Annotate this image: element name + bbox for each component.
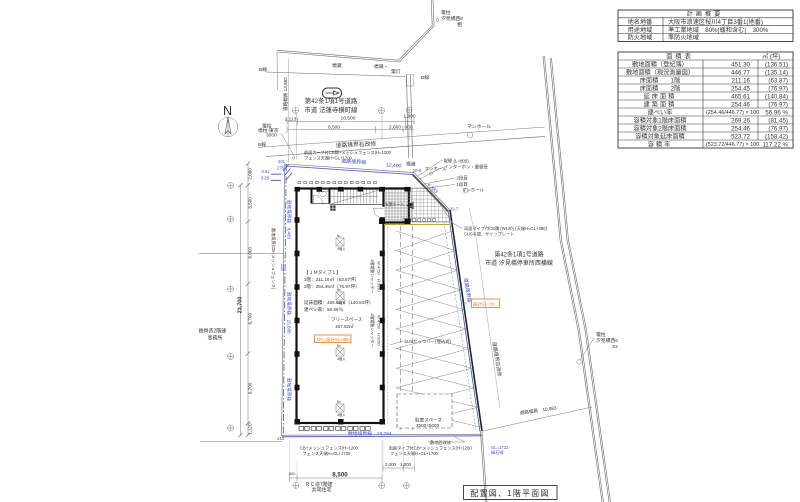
svg-text:3500×5000: 3500×5000: [416, 423, 440, 428]
svg-text:防火地域: 防火地域: [628, 34, 653, 42]
svg-text:敷地境界線 19,294: 敷地境界線 19,294: [348, 430, 392, 437]
svg-text:第42条1項1号道路: 第42条1項1号道路: [305, 96, 358, 105]
svg-text:1階：211.16㎡（63.87坪）: 1階：211.16㎡（63.87坪）: [304, 276, 359, 283]
svg-text:117.22 %: 117.22 %: [762, 141, 788, 148]
svg-text:(135.14): (135.14): [765, 69, 788, 76]
svg-text:1,113: 1,113: [285, 116, 297, 122]
svg-text:建ぺい率: 建ぺい率: [648, 108, 673, 116]
svg-text:縁石線: 縁石線: [491, 449, 504, 456]
svg-text:446.77: 446.77: [731, 69, 750, 76]
svg-text:4個入: 4個入: [337, 246, 346, 251]
svg-text:準工業地域 80%(緩和含む) 300%: 準工業地域 80%(緩和含む) 300%: [668, 26, 769, 34]
svg-text:準防火地域: 準防火地域: [668, 34, 699, 42]
svg-text:桜壁 (L=800): 桜壁 (L=800): [444, 158, 470, 165]
svg-text:電柱: 電柱: [596, 331, 606, 338]
svg-text:容積対象延床面積: 容積対象延床面積: [635, 132, 685, 140]
svg-text:設計GL=±0: 設計GL=±0: [473, 301, 495, 308]
svg-text:(76.97): (76.97): [768, 125, 788, 132]
svg-text:汐見橋西8: 汐見橋西8: [441, 15, 463, 22]
svg-text:第42条1項1号道路: 第42条1項1号道路: [494, 251, 543, 259]
svg-text:計画概要: 計画概要: [687, 10, 724, 18]
svg-text:大阪市浪速区桜川4丁目3番1(地番): 大阪市浪速区桜川4丁目3番1(地番): [668, 18, 763, 26]
svg-text:275: 275: [277, 166, 285, 171]
svg-text:465.61: 465.61: [731, 93, 750, 100]
svg-text:容積率: 容積率: [648, 140, 673, 148]
svg-text:254.45: 254.45: [731, 85, 750, 92]
svg-text:1,120: 1,120: [248, 423, 253, 435]
svg-text:電柱: 電柱: [441, 9, 451, 16]
svg-text:フェンス天端H=GL+1700: フェンス天端H=GL+1700: [303, 450, 352, 457]
svg-text:(63.87): (63.87): [768, 77, 788, 84]
svg-text:8,500: 8,500: [328, 125, 340, 131]
svg-text:269.26: 269.26: [731, 117, 750, 124]
svg-text:共同住宅: 共同住宅: [312, 487, 332, 494]
svg-text:(76.97): (76.97): [768, 101, 788, 108]
svg-text:SUSたっつバー(埋込式): SUSたっつバー(埋込式): [404, 338, 452, 345]
svg-text:地名地番: 地名地番: [628, 18, 653, 26]
svg-text:201: 201: [278, 159, 286, 164]
svg-text:建ぺい率：56.96％: 建ぺい率：56.96％: [304, 306, 343, 313]
svg-text:№: №: [337, 400, 341, 404]
svg-text:900: 900: [404, 125, 412, 131]
svg-text:SUS手摺、サインプレート: SUS手摺、サインプレート: [464, 231, 514, 238]
svg-text:10,500: 10,500: [341, 115, 356, 121]
svg-text:N: N: [223, 104, 232, 118]
svg-text:フェンス天端H=GL+1700: フェンス天端H=GL+1700: [390, 450, 439, 457]
svg-text:配置図、1階平面図: 配置図、1階平面図: [470, 488, 549, 498]
svg-text:市道 法蓮寺横町線: 市道 法蓮寺横町線: [305, 105, 359, 114]
svg-text:№: №: [337, 288, 341, 292]
svg-text:0.51: 0.51: [262, 169, 271, 174]
svg-text:容積対象2階床面積: 容積対象2階床面積: [634, 124, 687, 132]
svg-text:床面積 1階: 床面積 1階: [640, 76, 681, 84]
svg-text:汐見橋西6: 汐見橋西6: [596, 337, 618, 344]
svg-text:(81.45): (81.45): [768, 117, 788, 124]
svg-text:事務所: 事務所: [208, 335, 223, 342]
svg-text:敷地面積（現況測量図）: 敷地面積（現況測量図）: [626, 68, 694, 76]
svg-text:B線: B線: [259, 66, 267, 73]
svg-text:電灯: 電灯: [391, 68, 401, 75]
svg-text:2,080: 2,080: [248, 168, 253, 180]
svg-text:マンホール: マンホール: [467, 124, 491, 130]
svg-text:2,600: 2,600: [389, 125, 401, 131]
svg-text:玄関ホール: 玄関ホール: [385, 202, 404, 207]
svg-text:800: 800: [289, 472, 295, 476]
svg-text:6,700: 6,700: [248, 313, 253, 325]
svg-text:(158.42): (158.42): [765, 133, 788, 140]
svg-text:相: 相: [457, 21, 462, 28]
svg-text:4個入: 4個入: [337, 300, 346, 305]
svg-text:254.46: 254.46: [731, 101, 750, 108]
svg-text:23,700: 23,700: [238, 297, 244, 314]
svg-text:523.72: 523.72: [731, 133, 750, 140]
svg-text:8,500: 8,500: [332, 472, 348, 479]
svg-text:4個入: 4個入: [337, 356, 346, 361]
svg-text:標識: 標識: [332, 62, 342, 69]
svg-text:1階電動シャッター: 1階電動シャッター: [370, 313, 376, 347]
svg-text:敷地境界線: 敷地境界線: [286, 378, 293, 401]
svg-text:1,000: 1,000: [400, 462, 412, 467]
svg-text:2,000: 2,000: [385, 462, 397, 467]
svg-text:建築面積: 建築面積: [644, 100, 677, 108]
svg-text:№: №: [337, 234, 341, 238]
svg-text:敷地境界線 9,483: 敷地境界線 9,483: [286, 200, 293, 240]
svg-text:3000: 3000: [266, 133, 277, 139]
svg-text:延床面積: 延床面積: [644, 92, 677, 100]
svg-text:【ＪＭタイプ１】: 【ＪＭタイプ１】: [304, 269, 341, 276]
svg-text:4個入: 4個入: [337, 412, 346, 417]
svg-text:1階電動シャッター: 1階電動シャッター: [370, 259, 376, 293]
svg-text:0.25: 0.25: [261, 175, 270, 180]
svg-text:254.46: 254.46: [731, 125, 750, 132]
svg-text:敷地面積（登記簿）: 敷地面積（登記簿）: [632, 60, 688, 68]
svg-text:床面積 2階: 床面積 2階: [640, 84, 681, 92]
svg-text:(76.97): (76.97): [768, 85, 788, 92]
svg-text:1,900: 1,900: [403, 113, 415, 119]
svg-text:6,000: 6,000: [248, 247, 253, 259]
svg-text:(136.51): (136.51): [765, 61, 788, 68]
svg-text:標識・: 標識・: [374, 63, 388, 70]
svg-text:220: 220: [280, 264, 285, 272]
svg-text:敷地境界(CB+メッシュフェンス): 敷地境界(CB+メッシュフェンス): [270, 228, 277, 290]
svg-text:210: 210: [277, 436, 285, 441]
svg-text:187.92㎡: 187.92㎡: [335, 323, 354, 329]
svg-text:56.96 %: 56.96 %: [765, 109, 788, 116]
svg-text:用途地域: 用途地域: [628, 26, 653, 34]
svg-text:W:4750 H:3150: W:4750 H:3150: [377, 315, 382, 346]
svg-text:(523.72/446.77) × 100: (523.72/446.77) × 100: [706, 142, 759, 148]
svg-text:3,500: 3,500: [248, 197, 253, 209]
svg-text:容積対象1階床面積: 容積対象1階床面積: [634, 116, 687, 124]
svg-text:2段目: 2段目: [457, 175, 468, 182]
svg-text:20-6: 20-6: [413, 168, 422, 173]
svg-text:㎡ (坪): ㎡ (坪): [762, 53, 780, 61]
svg-text:面積表: 面積表: [666, 53, 694, 61]
svg-text:標識: 標識: [406, 161, 416, 168]
svg-text:2階：254.45㎡（76.97坪）: 2階：254.45㎡（76.97坪）: [304, 283, 360, 290]
svg-text:市道 汐見橋停車所西横線: 市道 汐見橋停車所西横線: [485, 259, 553, 267]
svg-text:451.30: 451.30: [731, 61, 750, 68]
svg-text:道路幅員 13,982: 道路幅員 13,982: [282, 77, 289, 111]
svg-text:(254.46/446.77) × 100: (254.46/446.77) × 100: [706, 110, 759, 116]
svg-text:211.16: 211.16: [732, 77, 751, 84]
svg-text:フリースペース: フリースペース: [331, 317, 363, 322]
svg-text:(140.84): (140.84): [765, 93, 788, 100]
svg-text:インターホン・郵便受: インターホン・郵便受: [444, 164, 489, 171]
svg-text:S2: S2: [612, 344, 618, 350]
svg-text:№: №: [337, 344, 341, 348]
svg-text:鉄骨造2階建: 鉄骨造2階建: [199, 328, 227, 335]
svg-text:1FL=設計GL+350: 1FL=設計GL+350: [317, 336, 351, 343]
svg-text:敷地境界線 15,886: 敷地境界線 15,886: [286, 292, 293, 334]
svg-text:12,400: 12,400: [386, 163, 402, 170]
svg-text:6,700: 6,700: [248, 382, 253, 394]
svg-text:B線: B線: [421, 74, 429, 81]
svg-text:W:4750 H:3150: W:4750 H:3150: [377, 261, 382, 292]
